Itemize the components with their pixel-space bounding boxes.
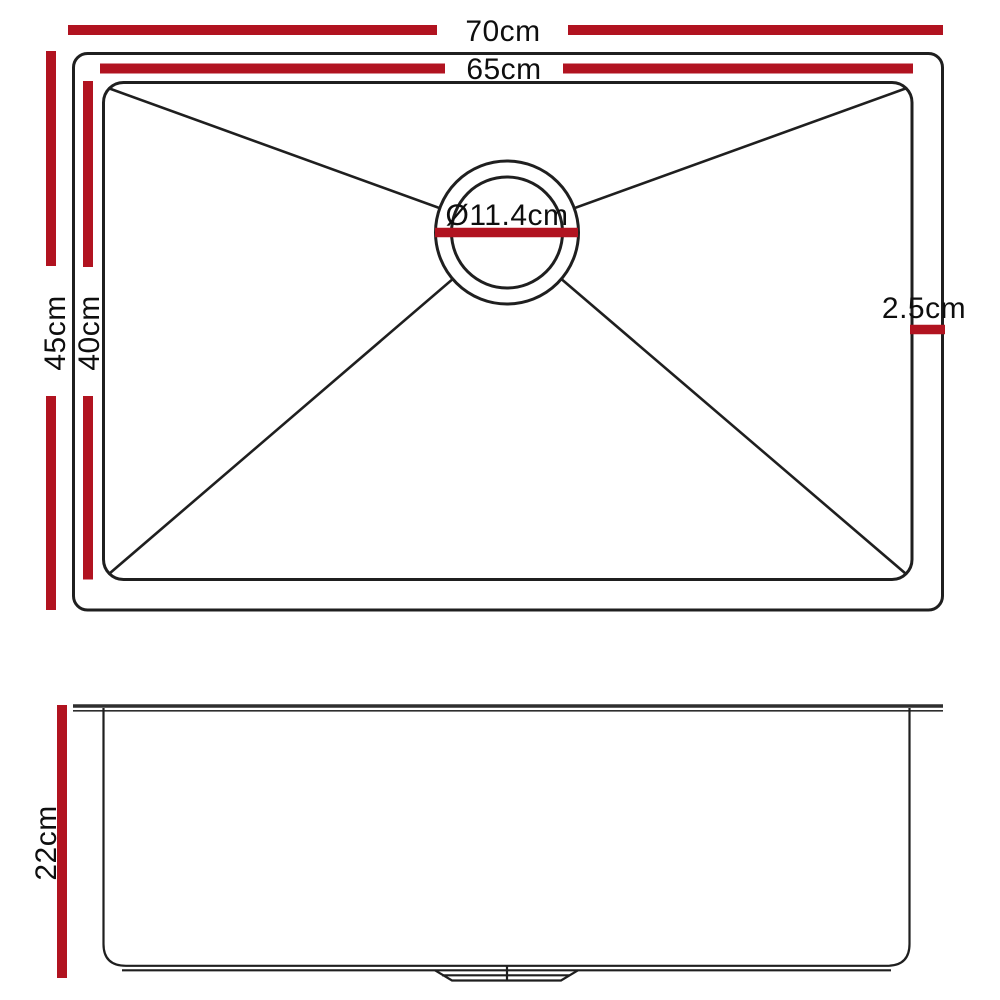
bowl-profile-path: [104, 708, 910, 966]
diagram-canvas: 70cm 65cm 45cm 40cm 2.5cm Ø11.4cm: [0, 0, 1000, 1000]
bowl-crease-bottom-right: [507, 233, 906, 574]
top-view: 70cm 65cm 45cm 40cm 2.5cm Ø11.4cm: [39, 15, 966, 610]
dim-outer-depth: 45cm: [39, 51, 72, 610]
sink-dimension-diagram: 70cm 65cm 45cm 40cm 2.5cm Ø11.4cm: [0, 0, 1000, 1000]
sink-bowl-inner-rect: [104, 83, 913, 580]
dim-drain-diameter: Ø11.4cm: [435, 199, 578, 233]
dim-inner-depth-label: 40cm: [73, 295, 106, 370]
dim-rim-offset: 2.5cm: [882, 292, 966, 330]
dim-bowl-depth-label: 22cm: [30, 805, 63, 880]
dim-inner-depth: 40cm: [73, 81, 106, 580]
dim-inner-width-label: 65cm: [466, 53, 541, 86]
dim-outer-width: 70cm: [68, 15, 943, 48]
dim-rim-offset-label: 2.5cm: [882, 292, 966, 325]
dim-bowl-depth: 22cm: [30, 705, 63, 978]
dim-outer-width-label: 70cm: [465, 15, 540, 48]
side-view: 22cm: [30, 705, 943, 981]
sink-outer-rim-rect: [74, 54, 943, 611]
dim-outer-depth-label: 45cm: [39, 295, 72, 370]
dim-drain-diameter-label: Ø11.4cm: [446, 199, 569, 232]
bowl-crease-bottom-left: [110, 233, 508, 574]
